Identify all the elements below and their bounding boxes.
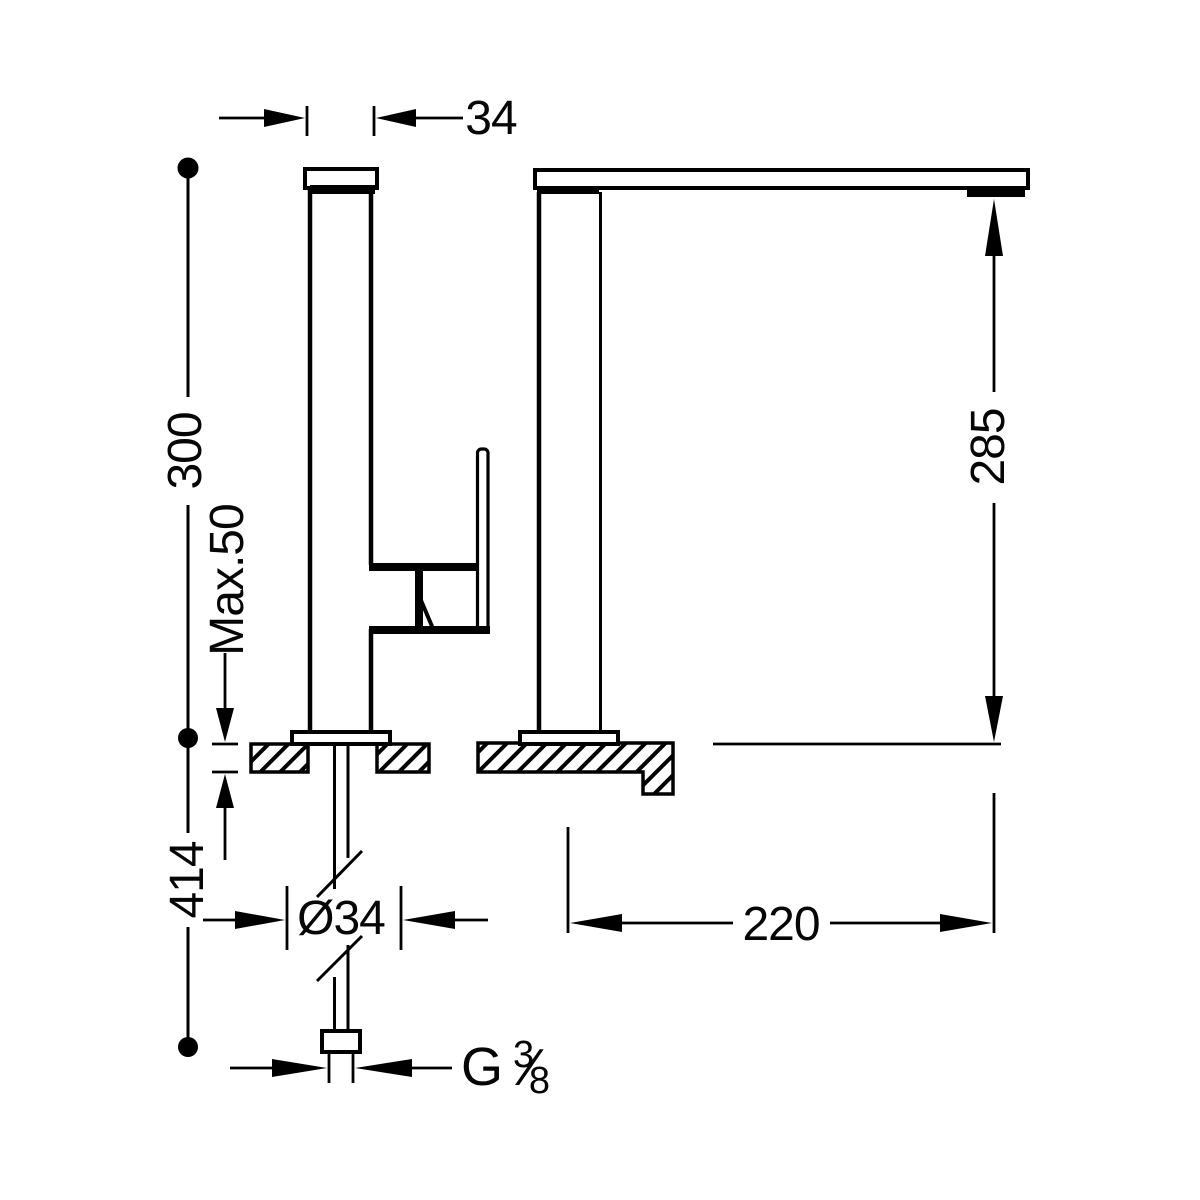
dim-label-max-thickness: Max.50 (204, 504, 252, 655)
countertop-side-section (478, 743, 673, 794)
faucet-dimension-drawing: 34 300 Max.50 414 285 220 Ø34 G 3 ⁄ 8 (0, 0, 1200, 1200)
faucet-side-view (520, 170, 1028, 744)
dim-max50-graphics (212, 653, 238, 860)
dim-220-arrow-right (940, 914, 992, 932)
dim-d34-arrow-left (235, 911, 285, 929)
datum-dot-top (178, 158, 199, 179)
counter-right-slab (377, 744, 429, 772)
g38-connector (322, 1031, 360, 1052)
datum-dot-counter (178, 728, 198, 748)
dim-g38-graphics (230, 1051, 452, 1083)
supply-pipe (317, 744, 362, 1031)
dim-label-spout-width: 34 (465, 95, 516, 143)
dim-d34-arrow-right (403, 911, 455, 929)
spout-outlet-lip (967, 188, 1025, 197)
diagram-linework (0, 0, 1200, 1200)
thread-prefix: G (461, 1040, 503, 1094)
dim-34-arrow-left (264, 109, 305, 127)
dim-285-graphics (713, 199, 1003, 744)
dim-label-under-counter-length: 414 (164, 841, 212, 918)
spout-bar (535, 170, 1028, 188)
dim-34-arrow-right (376, 109, 416, 127)
countertop-front-section (251, 744, 429, 772)
dim-label-spout-reach: 220 (742, 901, 819, 949)
spout-joint-band (537, 186, 599, 194)
dim-max50-arrow-down (216, 708, 234, 742)
dim-g38-arrow-left (272, 1059, 327, 1077)
front-top-band (310, 185, 375, 194)
counter-side-profile (478, 743, 673, 794)
dim-label-outlet-height: 285 (965, 408, 1013, 485)
dim-285-arrow-up (985, 199, 1003, 256)
dim-285-arrow-down (985, 696, 1003, 742)
dim-label-height-to-counter: 300 (162, 412, 210, 489)
thread-fraction: 3 ⁄ 8 (513, 1040, 550, 1092)
dim-220-arrow-left (570, 914, 622, 932)
dim-300-414-graphics (178, 158, 199, 1058)
handle-lever (478, 449, 489, 630)
dim-34-graphics (219, 106, 463, 136)
thread-denominator: 8 (529, 1062, 550, 1100)
dim-label-shank-diameter: Ø34 (297, 895, 385, 943)
side-base-flange (520, 732, 618, 744)
dim-g38-arrow-right (355, 1059, 412, 1077)
datum-dot-bottom (178, 1037, 198, 1057)
faucet-front-view (292, 169, 490, 744)
dim-label-thread: G 3 ⁄ 8 (461, 1040, 550, 1094)
counter-left-slab (251, 744, 308, 772)
pipe-break-upper (317, 851, 362, 897)
front-base-flange (292, 732, 390, 744)
dim-max50-arrow-up (216, 774, 234, 808)
